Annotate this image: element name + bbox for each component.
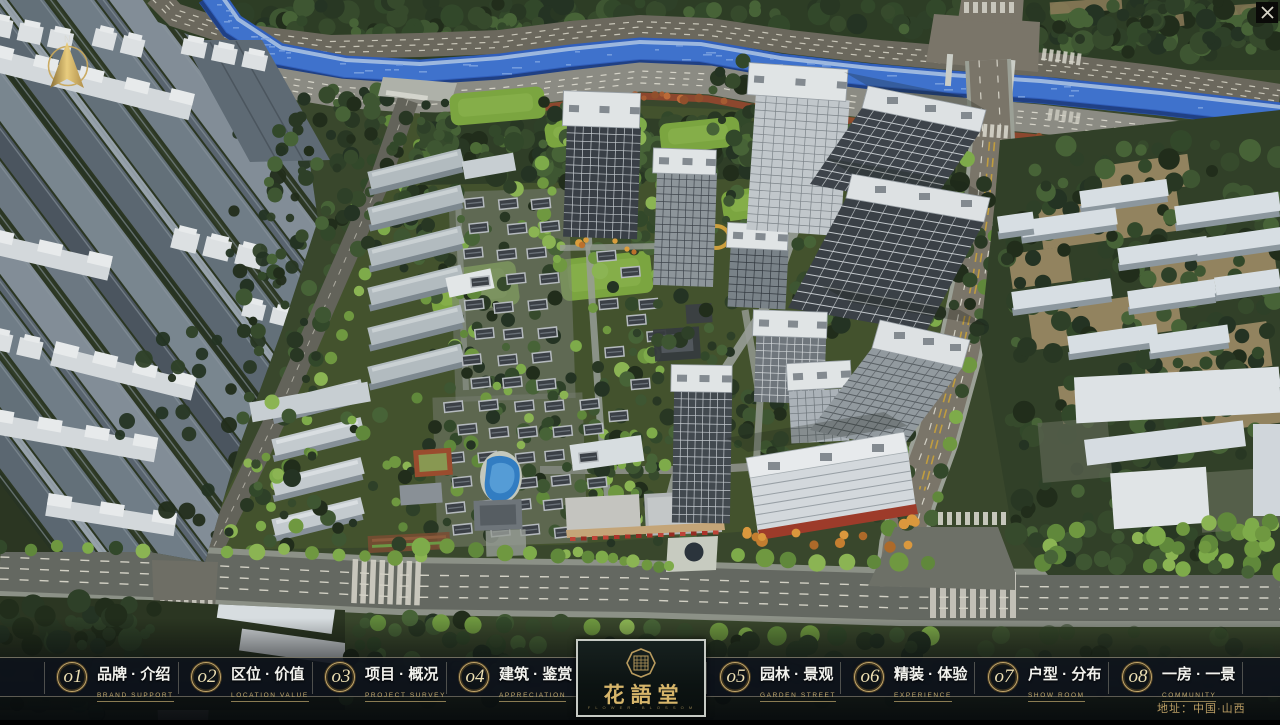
svg-text:N: N xyxy=(64,34,71,44)
